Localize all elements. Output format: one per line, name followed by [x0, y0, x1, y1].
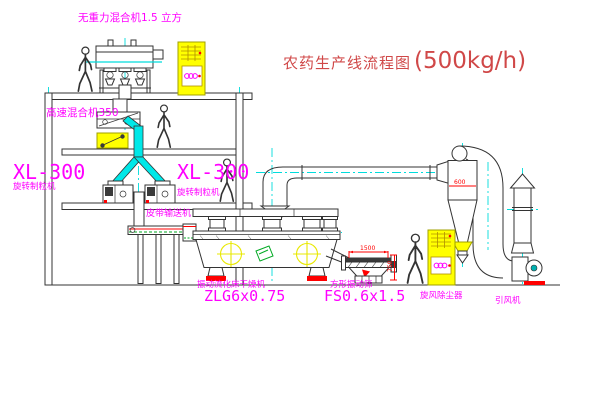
fluid-bed-dryer-drawing — [183, 209, 349, 281]
person-top-floor — [78, 47, 92, 91]
page-title: 农药生产线流程图 (500kg/h) — [283, 48, 526, 74]
granulator-left-drawing — [103, 185, 133, 203]
label-granulator-mid-name: 旋转制粒机 — [177, 189, 220, 198]
dim-sieve-height: 750 — [387, 260, 394, 272]
person-second-floor — [157, 105, 170, 147]
label-high-speed-mixer: 高速混合机350 — [46, 108, 119, 119]
vibrating-sieve-drawing: 1500 750 — [342, 245, 398, 283]
label-granulator-mid-model: XL-300 — [177, 162, 249, 182]
exhaust-stack — [511, 174, 535, 253]
label-granulator-left-name: 旋转制粒机 — [13, 183, 56, 192]
label-belt-conveyor: 皮带输送机 — [146, 210, 191, 219]
dim-cyclone-diameter: 600 — [454, 179, 466, 186]
product-chute — [134, 192, 144, 227]
pesticide-line-flow-diagram: 600 — [0, 0, 600, 403]
y-splitter-pipe — [108, 157, 170, 185]
label-dryer-model: ZLG6x0.75 — [204, 289, 285, 304]
label-gravity-mixer: 无重力混合机1.5 立方 — [78, 13, 182, 24]
title-capacity: (500kg/h) — [414, 48, 526, 74]
dim-sieve-length: 1500 — [360, 245, 375, 252]
control-cabinet-2 — [428, 230, 455, 285]
label-granulator-left-model: XL-300 — [13, 162, 85, 182]
induced-fan-drawing — [512, 257, 545, 285]
title-text: 农药生产线流程图 — [283, 52, 411, 73]
control-cabinet-1 — [178, 42, 205, 95]
label-cyclone: 旋风除尘器 — [420, 292, 463, 301]
label-sieve-model: FS0.6x1.5 — [324, 289, 405, 304]
gravity-mixer-drawing — [86, 40, 163, 99]
granulator-right-drawing — [145, 185, 175, 203]
label-fan: 引风机 — [495, 297, 521, 306]
person-ground — [408, 234, 423, 283]
